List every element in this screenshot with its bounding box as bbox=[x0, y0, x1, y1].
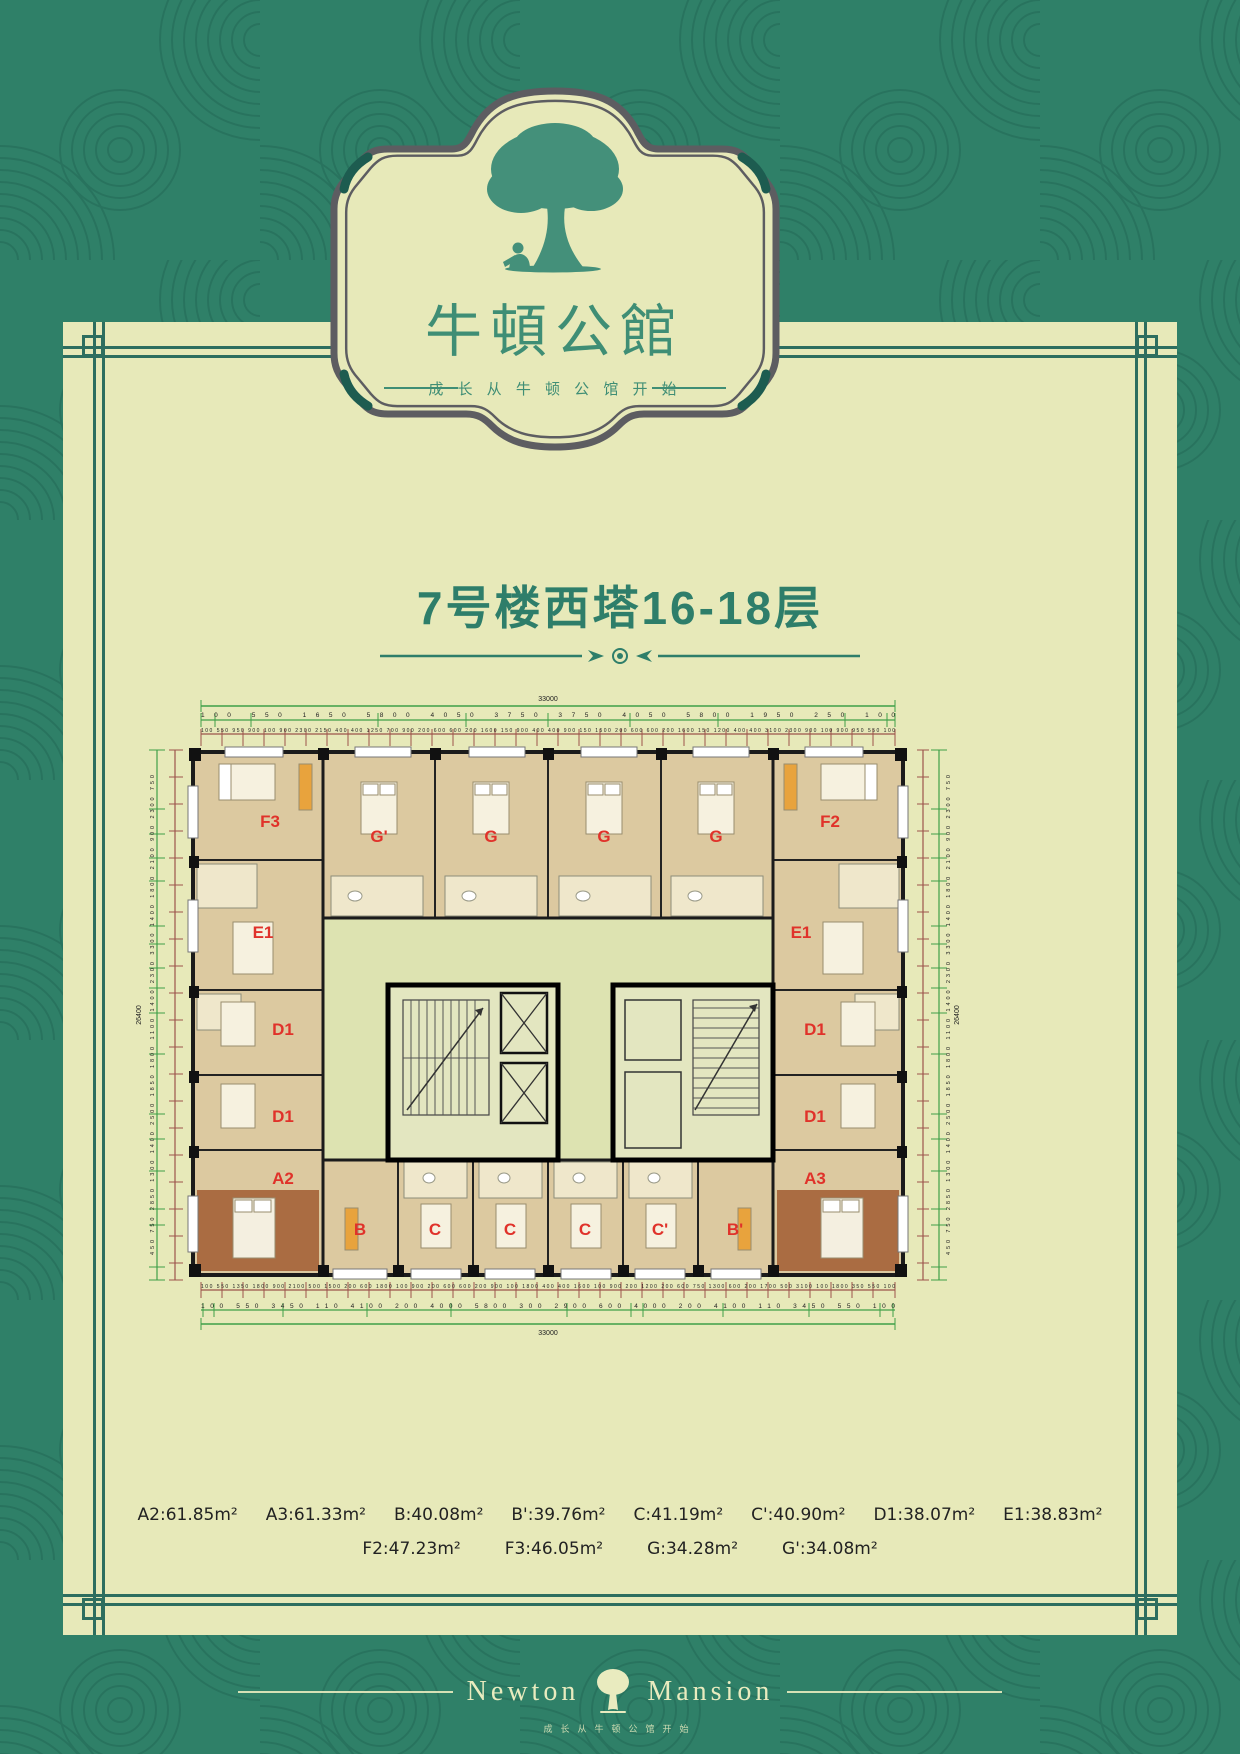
dim-bottom-detail: 100 550 1350 1800 900 2100 500 1500 200 … bbox=[201, 1284, 895, 1290]
legend-item: C:41.19m² bbox=[634, 1505, 724, 1525]
unit-label: D1 bbox=[804, 1107, 826, 1126]
legend-item: B:40.08m² bbox=[394, 1505, 483, 1525]
unit-label: D1 bbox=[804, 1020, 826, 1039]
legend-item: E1:38.83m² bbox=[1003, 1505, 1102, 1525]
dim-bottom-total: 33000 bbox=[538, 1330, 558, 1337]
frame-corner-square bbox=[1136, 335, 1158, 357]
unit-label: C' bbox=[652, 1220, 668, 1239]
dim-top-detail: 100 550 950 900 100 900 2300 2150 400 40… bbox=[201, 728, 895, 734]
dimension-lines-bottom: 100 550 1350 1800 900 2100 500 1500 200 … bbox=[201, 1282, 895, 1337]
unit-label: G bbox=[709, 827, 722, 846]
legend-item: B':39.76m² bbox=[511, 1505, 605, 1525]
brand-badge: 牛頓公館 成 长 从 牛 顿 公 馆 开 始 bbox=[292, 85, 818, 458]
elevator bbox=[501, 1063, 547, 1123]
unit-label: F2 bbox=[820, 812, 840, 831]
unit-label: G bbox=[484, 827, 497, 846]
unit-label: D1 bbox=[272, 1020, 294, 1039]
unit-label: B' bbox=[727, 1220, 743, 1239]
footer-brand-left: Newton bbox=[467, 1676, 580, 1708]
dim-right-total: 26400 bbox=[954, 1005, 961, 1025]
unit-label: C bbox=[579, 1220, 591, 1239]
unit-label: D1 bbox=[272, 1107, 294, 1126]
unit-label: F3 bbox=[260, 812, 280, 831]
legend-item: A2:61.85m² bbox=[138, 1505, 238, 1525]
dim-right-segments: 450 750 2850 1300 1400 2500 1850 1800 11… bbox=[946, 775, 952, 1255]
footer-tagline: 成长从牛顿公馆开始 bbox=[543, 1722, 696, 1735]
unit-label: A2 bbox=[272, 1169, 294, 1188]
dimension-lines-left: 26400 450 750 2850 1300 1400 2500 1850 1… bbox=[136, 750, 183, 1280]
dim-left-total: 26400 bbox=[136, 1005, 143, 1025]
dimension-lines-top: 33000 100 550 1650 5800 4050 3750 3750 4… bbox=[201, 696, 895, 746]
legend-item: G':34.08m² bbox=[782, 1539, 878, 1559]
legend-item: G:34.28m² bbox=[647, 1539, 738, 1559]
unit-label: E1 bbox=[253, 923, 274, 942]
page-title: 7号楼西塔16-18层 bbox=[0, 572, 1240, 638]
dim-top-total: 33000 bbox=[538, 696, 558, 703]
dim-top-segments: 100 550 1650 5800 4050 3750 3750 4050 58… bbox=[201, 712, 895, 719]
unit-label: G' bbox=[370, 827, 387, 846]
frame-corner-square bbox=[82, 335, 104, 357]
stair-core-right bbox=[613, 985, 773, 1160]
legend-line-1: A2:61.85m² A3:61.33m² B:40.08m² B':39.76… bbox=[63, 1505, 1177, 1525]
frame-corner-square bbox=[1136, 1598, 1158, 1620]
floor-plan: 33000 100 550 1650 5800 4050 3750 3750 4… bbox=[133, 690, 963, 1362]
dim-bottom-segments: 100 550 3450 110 4100 200 4000 5800 300 … bbox=[201, 1303, 895, 1310]
legend-item: F3:46.05m² bbox=[505, 1539, 603, 1559]
stair-elevator-core-left bbox=[388, 985, 558, 1160]
frame-corner-square bbox=[82, 1598, 104, 1620]
legend-item: C':40.90m² bbox=[751, 1505, 845, 1525]
area-legend: A2:61.85m² A3:61.33m² B:40.08m² B':39.76… bbox=[63, 1505, 1177, 1559]
building-outline: F3 G' G G G F2 E1 E1 D1 D1 D1 D1 A2 A3 B… bbox=[188, 747, 908, 1279]
footer: Newton Mansion 成长从牛顿公馆开始 bbox=[0, 1668, 1240, 1735]
dimension-lines-right: 26400 450 750 2850 1300 1400 2500 1850 1… bbox=[917, 750, 961, 1280]
brand-tagline: 成 长 从 牛 顿 公 馆 开 始 bbox=[428, 381, 681, 398]
unit-label: C bbox=[429, 1220, 441, 1239]
poster-page: 33000 100 550 1650 5800 4050 3750 3750 4… bbox=[0, 0, 1240, 1754]
frame-line-left bbox=[93, 322, 105, 1635]
divider-ornament-icon bbox=[380, 646, 860, 666]
footer-tree-icon bbox=[593, 1668, 633, 1716]
elevator bbox=[501, 993, 547, 1053]
legend-item: F2:47.23m² bbox=[362, 1539, 460, 1559]
legend-item: D1:38.07m² bbox=[873, 1505, 975, 1525]
footer-brand-right: Mansion bbox=[647, 1676, 773, 1708]
frame-line-right bbox=[1135, 322, 1147, 1635]
unit-label: A3 bbox=[804, 1169, 826, 1188]
legend-line-2: F2:47.23m² F3:46.05m² G:34.28m² G':34.08… bbox=[63, 1539, 1177, 1559]
unit-label: B bbox=[354, 1220, 366, 1239]
dim-left-segments: 450 750 2850 1300 1400 2500 1850 1800 11… bbox=[150, 775, 156, 1255]
footer-rule-left bbox=[238, 1691, 453, 1693]
legend-item: A3:61.33m² bbox=[266, 1505, 366, 1525]
frame-line-bottom bbox=[63, 1594, 1177, 1606]
footer-rule-right bbox=[787, 1691, 1002, 1693]
unit-label: E1 bbox=[791, 923, 812, 942]
unit-label: G bbox=[597, 827, 610, 846]
unit-label: C bbox=[504, 1220, 516, 1239]
brand-title: 牛頓公館 bbox=[425, 300, 685, 364]
